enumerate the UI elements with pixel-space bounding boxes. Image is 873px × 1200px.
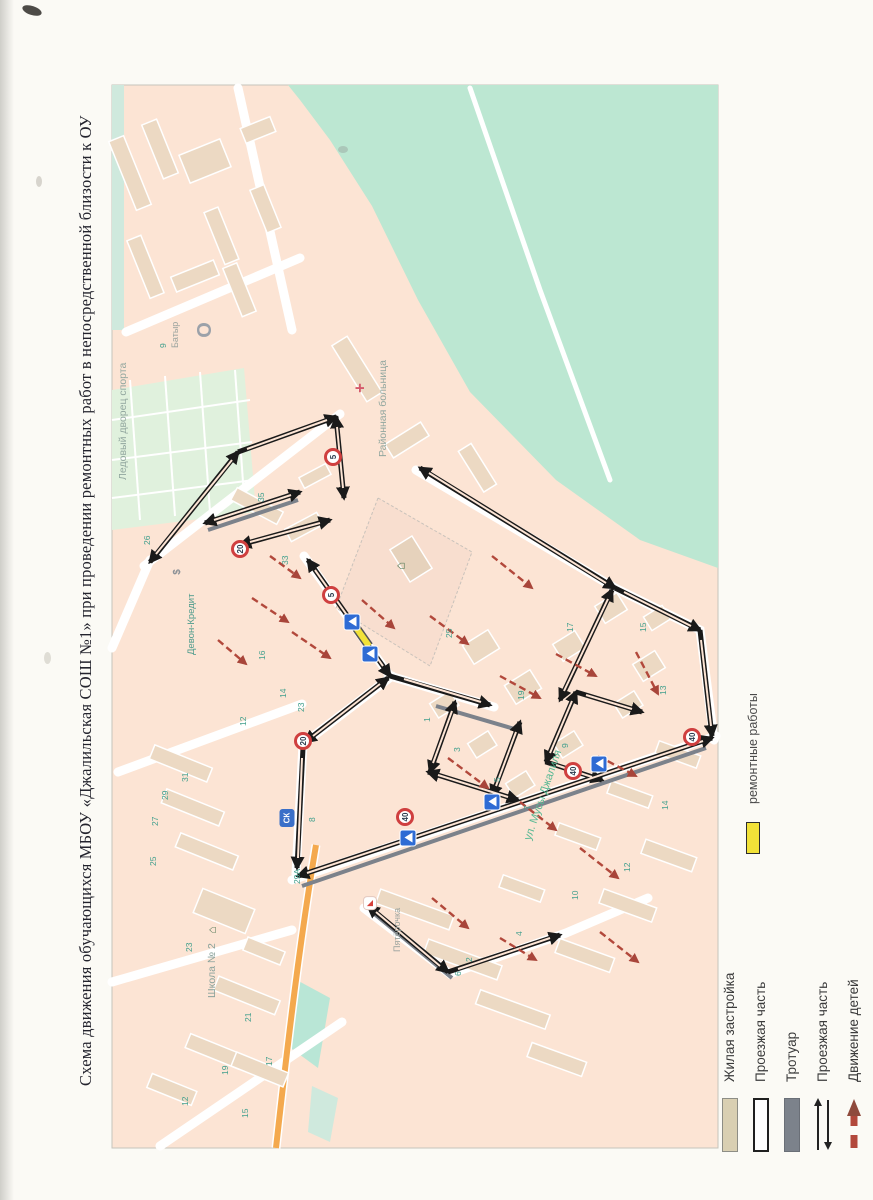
house-number: 10 [570, 891, 580, 900]
house-number: 33 [280, 556, 290, 565]
house-number: 14 [278, 689, 288, 698]
legend-swatch-residential [722, 1098, 738, 1152]
house-number: 12 [622, 863, 632, 872]
house-number: 21 [243, 1013, 253, 1022]
speed-limit-sign: 5 [324, 448, 342, 466]
scan-artifact [36, 176, 42, 187]
speed-limit-sign: 5 [322, 586, 340, 604]
house-number: 6 [453, 971, 463, 976]
house-number: 12 [238, 717, 248, 726]
house-number: 23 [184, 943, 194, 952]
legend-item: Движение детей [838, 842, 869, 1152]
house-number: 12 [180, 1097, 190, 1106]
scan-artifact [44, 652, 51, 664]
house-number: 15 [638, 623, 648, 632]
house-number: 35 [256, 493, 266, 502]
legend-repair-label: ремонтные работы [746, 693, 760, 804]
legend-item: Проезжая часть [745, 842, 776, 1152]
legend-item: Проезжая часть [807, 842, 838, 1152]
house-number: 29 [160, 791, 170, 800]
poi-badge: СК [280, 809, 295, 827]
hospital-cross-icon: + [352, 383, 369, 393]
house-number: 27 [150, 817, 160, 826]
legend-swatch-children-arrow [846, 1098, 862, 1152]
map-label: Пятёрочка [392, 908, 402, 952]
house-number: 16 [257, 651, 267, 660]
pedestrian-crossing-sign [344, 614, 361, 631]
legend-label: Движение детей [846, 979, 861, 1082]
house-number: 17 [264, 1057, 274, 1066]
house-number: 9 [560, 743, 570, 748]
map-label: Батыр [170, 322, 180, 348]
legend-label: Проезжая часть [753, 982, 768, 1082]
map-label: Девон-Кредит [186, 594, 197, 655]
legend-label: Жилая застройка [722, 973, 737, 1082]
map-label: ул. Мусы Джалиля [522, 748, 564, 842]
map-label: Школа № 2 [206, 943, 218, 998]
scanned-page: Схема движения обучающихся МБОУ «Джалиль… [0, 0, 873, 1200]
legend-label: Тротуар [784, 1032, 799, 1082]
speed-limit-sign: 20 [294, 732, 312, 750]
house-number: 7 [522, 805, 532, 810]
house-number: 5 [492, 777, 502, 782]
house-number: 26 [142, 536, 152, 545]
pedestrian-crossing-sign [484, 794, 501, 811]
house-number: 3 [452, 747, 462, 752]
house-number: 2 [464, 957, 474, 962]
legend-swatch-road-arrows [815, 1098, 831, 1152]
legend-item: Тротуар [776, 842, 807, 1152]
house-number: 19 [516, 691, 526, 700]
scan-artifact [338, 146, 348, 153]
house-number: 13 [658, 686, 668, 695]
house-number: 19 [220, 1066, 230, 1075]
bank-icon: $ [173, 569, 183, 575]
legend-item: Жилая застройка [714, 842, 745, 1152]
stadium-letter-icon: О [195, 322, 215, 338]
speed-limit-sign: 40 [564, 762, 582, 780]
house-number: 4 [514, 931, 524, 936]
school2-icon: ⌂ [206, 926, 218, 933]
map-label: Районная больница [377, 360, 389, 457]
house-number: 8 [307, 817, 317, 822]
legend-swatch-sidewalk [784, 1098, 800, 1152]
pedestrian-crossing-sign [591, 756, 608, 773]
page-title: Схема движения обучающихся МБОУ «Джалиль… [76, 115, 96, 1086]
house-number: 9 [158, 343, 168, 348]
house-number: 15 [240, 1109, 250, 1118]
map-label: Ледовый дворец спорта [117, 363, 129, 480]
house-number: 14 [660, 801, 670, 810]
house-number: 1 [422, 717, 432, 722]
pedestrian-crossing-sign [400, 830, 417, 847]
house-number: 25 [444, 629, 454, 638]
pyaterochka-logo: ◣ [364, 897, 376, 909]
pedestrian-crossing-sign [362, 646, 379, 663]
house-number: 29А [292, 869, 302, 884]
house-number: 25 [148, 857, 158, 866]
school-icon: ⌂ [394, 562, 407, 570]
speed-limit-sign: 40 [396, 808, 414, 826]
legend: Жилая застройкаПроезжая частьТротуарПрое… [714, 842, 869, 1152]
speed-limit-sign: 40 [683, 728, 701, 746]
legend-repair: ремонтные работы [746, 594, 760, 854]
house-number: 23 [296, 703, 306, 712]
house-number: 31 [180, 773, 190, 782]
legend-label: Проезжая часть [815, 982, 830, 1082]
legend-swatch-roadway [753, 1098, 769, 1152]
house-number: 17 [565, 623, 575, 632]
speed-limit-sign: 20 [231, 540, 249, 558]
